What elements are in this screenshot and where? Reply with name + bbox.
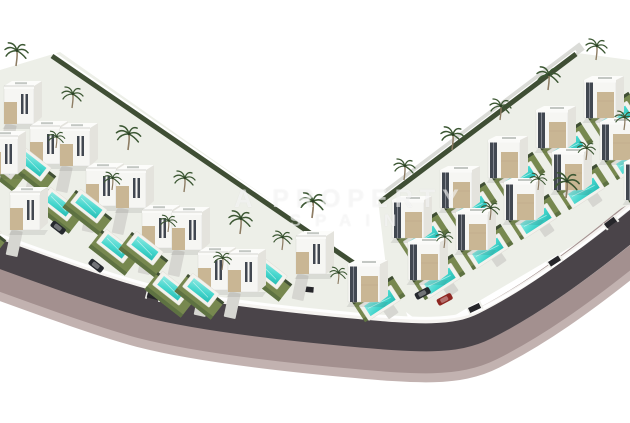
render-stage: A PROPERTY SPAIN bbox=[0, 0, 630, 423]
development-render-canvas bbox=[0, 0, 630, 423]
